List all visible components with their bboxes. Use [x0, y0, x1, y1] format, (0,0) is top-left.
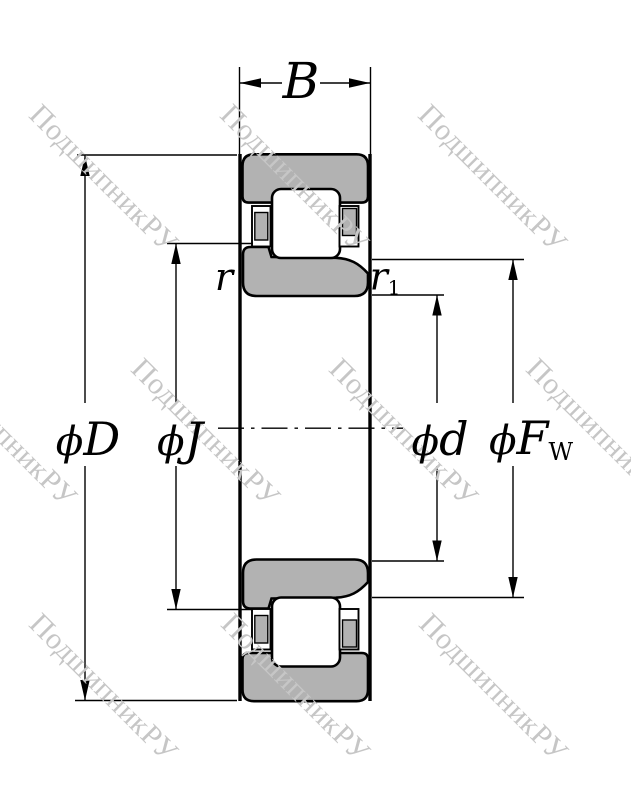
arrowhead-B-left — [240, 78, 261, 87]
phi-symbol: ϕ — [411, 417, 439, 465]
arrowhead-D-bottom — [80, 680, 89, 701]
arrowhead-FW-top — [508, 260, 517, 281]
arrowhead-d-top — [432, 295, 441, 316]
bottom-right-cage-pocket — [343, 620, 357, 647]
arrowhead-FW-bottom — [508, 577, 517, 598]
dim-label-J: ϕJ — [157, 416, 203, 462]
bottom-left-cage-pocket — [255, 616, 268, 644]
phi-symbol: ϕ — [489, 416, 517, 464]
arrowhead-d-bottom — [432, 541, 441, 562]
arrowhead-J-bottom — [171, 589, 180, 610]
bearing-cross-section-svg — [0, 0, 631, 792]
dim-label-FW: ϕFW — [489, 415, 573, 465]
arrowhead-J-top — [171, 244, 180, 265]
top-left-cage-pocket — [255, 213, 268, 241]
dim-label-B: B — [283, 56, 320, 106]
bottom-roller — [272, 598, 340, 667]
dim-label-r1: r1 — [370, 258, 401, 299]
phi-symbol: ϕ — [157, 417, 185, 465]
arrowhead-B-right — [349, 78, 370, 87]
dim-label-r: r — [215, 258, 233, 296]
top-roller — [272, 189, 340, 258]
top-right-cage-pocket — [343, 209, 357, 236]
dim-label-D: ϕD — [56, 416, 120, 462]
bearing-dimension-drawing: ПодшипникРУ ПодшипникРУ ПодшипникРУ Подш… — [0, 0, 631, 792]
arrowhead-D-top — [80, 156, 89, 177]
phi-symbol: ϕ — [56, 417, 84, 465]
dim-label-d: ϕd — [411, 416, 468, 462]
